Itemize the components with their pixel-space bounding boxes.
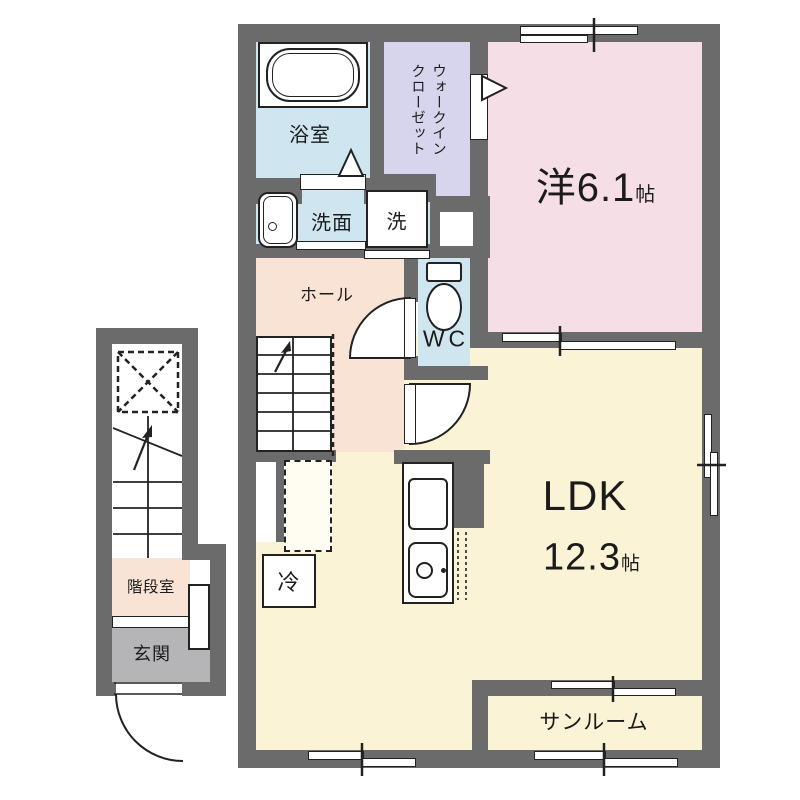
- room-label-sunroom: サンルーム: [539, 706, 648, 736]
- ldk-door-leaf: [404, 384, 416, 444]
- ldk-door-swing: [410, 384, 470, 444]
- floor-plan: 浴室 洗面 洗 ウォークインクローゼット 洋6.1帖 ホール WC LDK 12…: [0, 0, 800, 800]
- closet-label-line2: クローゼット: [407, 64, 428, 157]
- hall-stairs-up-arrow: [275, 341, 291, 372]
- annex-stairs-up-arrow: [134, 425, 152, 470]
- room-label-washroom: 洗面: [311, 207, 353, 236]
- ldk-size-unit: 帖: [621, 554, 641, 575]
- washer-label: 洗: [387, 206, 408, 235]
- room-label-bath: 浴室: [289, 119, 331, 148]
- kitchen-dashed-lines: [458, 532, 466, 600]
- room-label-wc: WC: [423, 326, 469, 353]
- ldk-size-value: 12.3: [543, 537, 621, 579]
- hall-stairs-treads: [258, 337, 330, 451]
- room-label-western: 洋6.1帖: [536, 155, 657, 213]
- room-label-walk-in-closet: ウォークインクローゼット: [407, 64, 449, 157]
- refrigerator-label: 冷: [277, 565, 300, 597]
- bath-door-triangle-icon: [339, 150, 363, 176]
- western-label-unit: 帖: [635, 184, 656, 206]
- closet-door-triangle-icon: [482, 76, 506, 100]
- room-label-ldk-size: 12.3帖: [543, 537, 641, 580]
- toilet-bowl-icon: [427, 284, 461, 330]
- fixtures-overlay: [0, 0, 800, 800]
- wc-door-leaf: [404, 298, 416, 358]
- room-label-ldk: LDK: [543, 472, 628, 520]
- room-label-hall: ホール: [300, 281, 354, 306]
- room-label-entrance: 玄関: [133, 640, 171, 666]
- void-dashed-x-box: [118, 352, 178, 412]
- room-label-stair-room: 階段室: [127, 575, 175, 597]
- entrance-door-leaf: [188, 584, 210, 650]
- closet-label-line1: ウォークイン: [428, 64, 449, 157]
- wc-door-swing: [350, 298, 410, 358]
- western-label-size: 洋6.1: [536, 166, 636, 210]
